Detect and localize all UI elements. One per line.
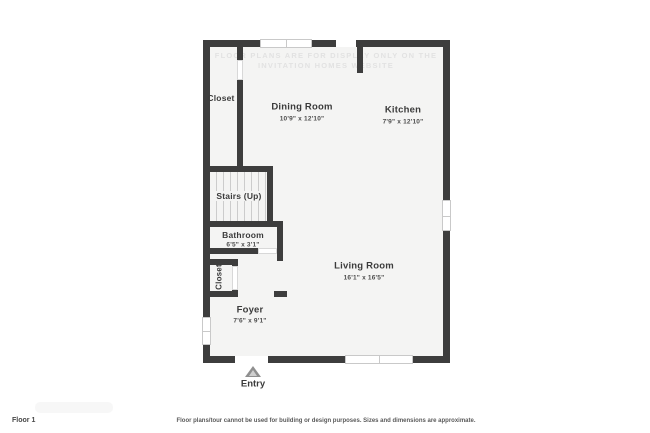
room-label-bathroom: Bathroom [222, 230, 264, 240]
wall-segment [268, 356, 345, 363]
wall-segment [277, 221, 283, 261]
door-opening [237, 60, 243, 80]
room-dims-foyer: 7'6" x 9'1" [233, 318, 266, 325]
wall-segment [203, 40, 260, 47]
disclaimer-text: Floor plans/tour cannot be used for buil… [176, 418, 475, 424]
window [202, 317, 211, 345]
window-mullion [379, 356, 380, 363]
window-mullion [286, 40, 287, 47]
room-label-kitchen: Kitchen [385, 105, 421, 116]
room-label-closet-top: Closet [207, 93, 234, 103]
room-dims-dining: 10'9" x 12'10" [280, 116, 325, 123]
window-mullion [443, 216, 450, 217]
room-dims-bathroom: 6'5" x 3'1" [226, 242, 259, 249]
wall-segment [203, 356, 235, 363]
wall-segment [443, 40, 450, 200]
wall-segment [267, 166, 273, 222]
floor-plan-page: FLOOR PLANS ARE FOR DISPLAY ONLY ON THE … [0, 0, 650, 433]
wall-segment [357, 47, 363, 73]
wall-segment [237, 47, 243, 60]
room-dims-kitchen: 7'9" x 12'10" [383, 119, 424, 126]
wall-segment [203, 291, 238, 297]
window [442, 200, 451, 231]
wall-segment [274, 291, 287, 297]
wall-opening [336, 40, 356, 47]
wall-segment [207, 248, 258, 254]
room-label-stairs: Stairs (Up) [213, 191, 264, 201]
wall-segment [232, 259, 238, 266]
door-opening [258, 248, 277, 254]
room-label-dining: Dining Room [271, 102, 332, 113]
wall-segment [237, 80, 243, 172]
floor-selector-label: Floor 1 [12, 417, 35, 424]
window [260, 39, 312, 48]
entry-opening [235, 356, 268, 363]
window-mullion [203, 331, 210, 332]
wall-segment [443, 231, 450, 363]
room-label-closet-lower: Closet [215, 264, 224, 290]
wall-segment [413, 356, 450, 363]
room-label-foyer: Foyer [237, 305, 264, 316]
wall-segment [207, 221, 283, 227]
window [345, 355, 413, 364]
wall-segment [312, 40, 336, 47]
entry-label: Entry [241, 379, 265, 390]
wall-segment [356, 40, 450, 47]
entry-arrow-icon-inner [249, 370, 257, 376]
room-dims-living: 16'1" x 16'5" [344, 275, 385, 282]
door-opening [232, 266, 238, 290]
wall-segment [203, 40, 210, 317]
footer-faded-pill [35, 402, 113, 413]
room-label-living: Living Room [334, 261, 394, 272]
